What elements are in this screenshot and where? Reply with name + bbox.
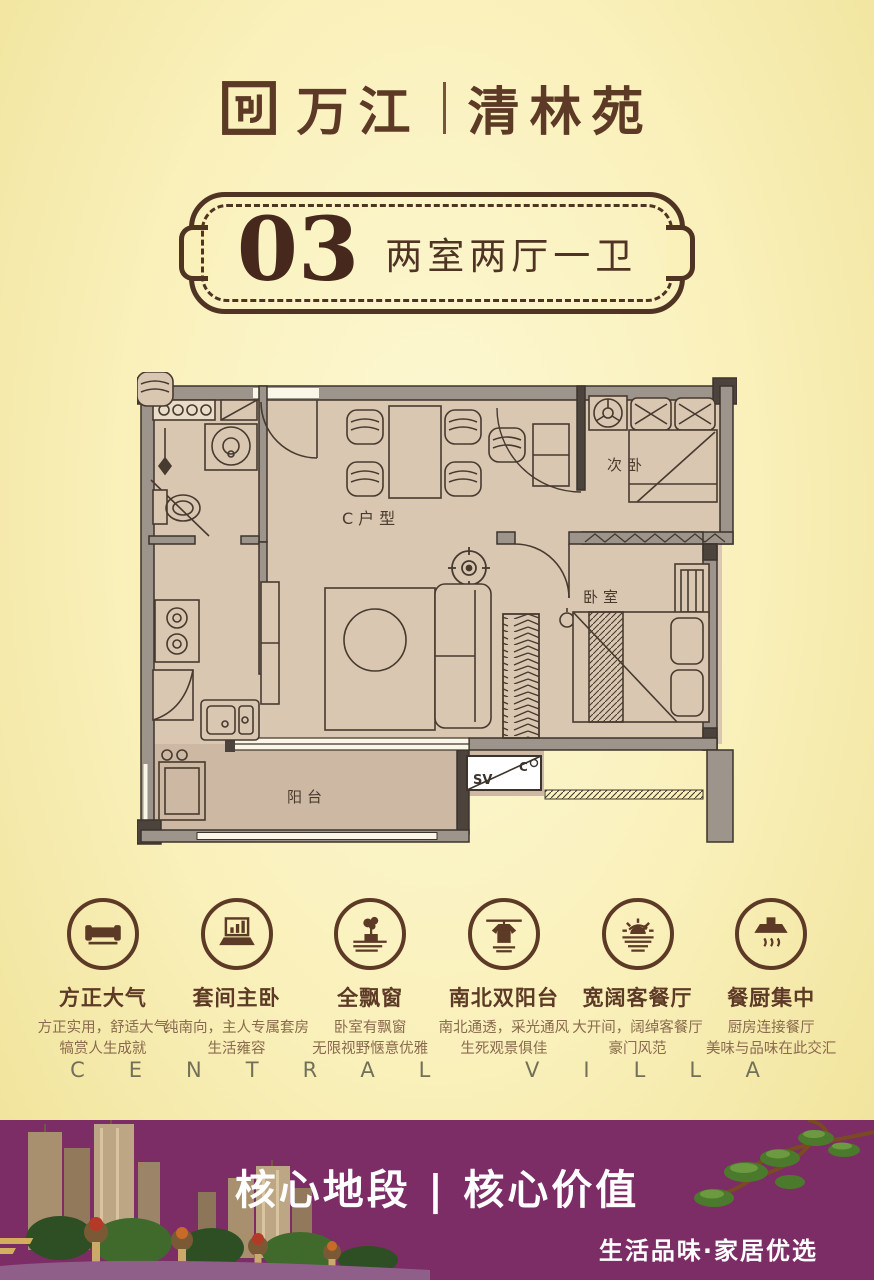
secondary-bedroom-label: 次卧: [607, 456, 647, 474]
balcony-label: 阳台: [287, 788, 327, 806]
ac-label-sv: SV: [473, 773, 492, 788]
hanging-shirt-icon: [468, 898, 540, 970]
feature-kitchen-dining: 餐厨集中 厨房连接餐厅 美味与品味在此交汇: [704, 898, 838, 1060]
brand-header: 万江 清林苑: [0, 70, 874, 145]
window-band: [225, 736, 469, 752]
feature-line1: 厨房连接餐厅: [728, 1020, 815, 1036]
feature-master-suite: 套间主卧 纯南向，主人专属套房 生活雍容: [170, 898, 304, 1060]
brand-seal-icon: [220, 79, 278, 137]
badge-dashed-border: [201, 204, 673, 302]
feature-line2: 生活雍容: [208, 1041, 266, 1057]
feature-line2: 无限视野惬意优雅: [312, 1041, 428, 1057]
feature-title: 餐厨集中: [727, 982, 815, 1012]
feature-line2: 美味与品味在此交汇: [706, 1041, 837, 1057]
feature-bay-window: 全飘窗 卧室有飘窗 无限视野惬意优雅: [303, 898, 437, 1060]
feature-line1: 方正实用，舒适大气: [38, 1020, 169, 1036]
feature-wide-living-dining: 宽阔客餐厅 大开间，阔绰客餐厅 豪门风范: [571, 898, 705, 1060]
brand-name-left: 万江: [296, 70, 420, 145]
feature-line2: 豪门风范: [609, 1041, 667, 1057]
ac-label-c: C: [519, 760, 528, 774]
feature-title: 南北双阳台: [449, 982, 559, 1012]
feature-line2: 生死观景俱佳: [460, 1041, 547, 1057]
range-hood-icon: [735, 898, 807, 970]
feature-title: 全飘窗: [337, 982, 403, 1012]
sofa-icon: [67, 898, 139, 970]
features-row: 方正大气 方正实用，舒适大气 犒赏人生成就 套间主卧 纯南向，主人专属套房 生活…: [0, 898, 874, 1060]
unit-type-label: C户型: [342, 509, 400, 528]
bay-window-plant-icon: [334, 898, 406, 970]
feature-line2: 犒赏人生成就: [59, 1041, 146, 1057]
brand-name-right: 清林苑: [468, 70, 654, 145]
unit-badge: 03 两室两厅一卫: [189, 192, 685, 314]
master-bedroom-label: 卧室: [583, 588, 623, 606]
feature-squarish-layout: 方正大气 方正实用，舒适大气 犒赏人生成就: [36, 898, 170, 1060]
watermark-text: CENTRAL VILLA: [0, 1058, 874, 1082]
feature-title: 宽阔客餐厅: [583, 982, 693, 1012]
feature-line1: 纯南向，主人专属套房: [164, 1020, 309, 1036]
footer-headline: 核心地段 | 核心价值: [235, 1156, 640, 1216]
feature-title: 套间主卧: [193, 982, 281, 1012]
feature-double-balcony: 南北双阳台 南北通透，采光通风 生死观景俱佳: [437, 898, 571, 1060]
brand-divider: [443, 82, 446, 134]
footer-banner: 核心地段 | 核心价值 生活品味·家居优选: [0, 1120, 874, 1280]
feature-line1: 南北通透，采光通风: [439, 1020, 570, 1036]
feature-line1: 卧室有飘窗: [334, 1020, 407, 1036]
sunrise-icon: [602, 898, 674, 970]
poster-page: 万江 清林苑 03 两室两厅一卫: [0, 0, 874, 1280]
laptop-chart-icon: [201, 898, 273, 970]
feature-title: 方正大气: [59, 982, 147, 1012]
feature-line1: 大开间，阔绰客餐厅: [572, 1020, 703, 1036]
footer-tagline: 生活品味·家居优选: [599, 1231, 818, 1266]
floorplan: SV C C户型 次卧 卧室 阳台: [137, 372, 737, 847]
